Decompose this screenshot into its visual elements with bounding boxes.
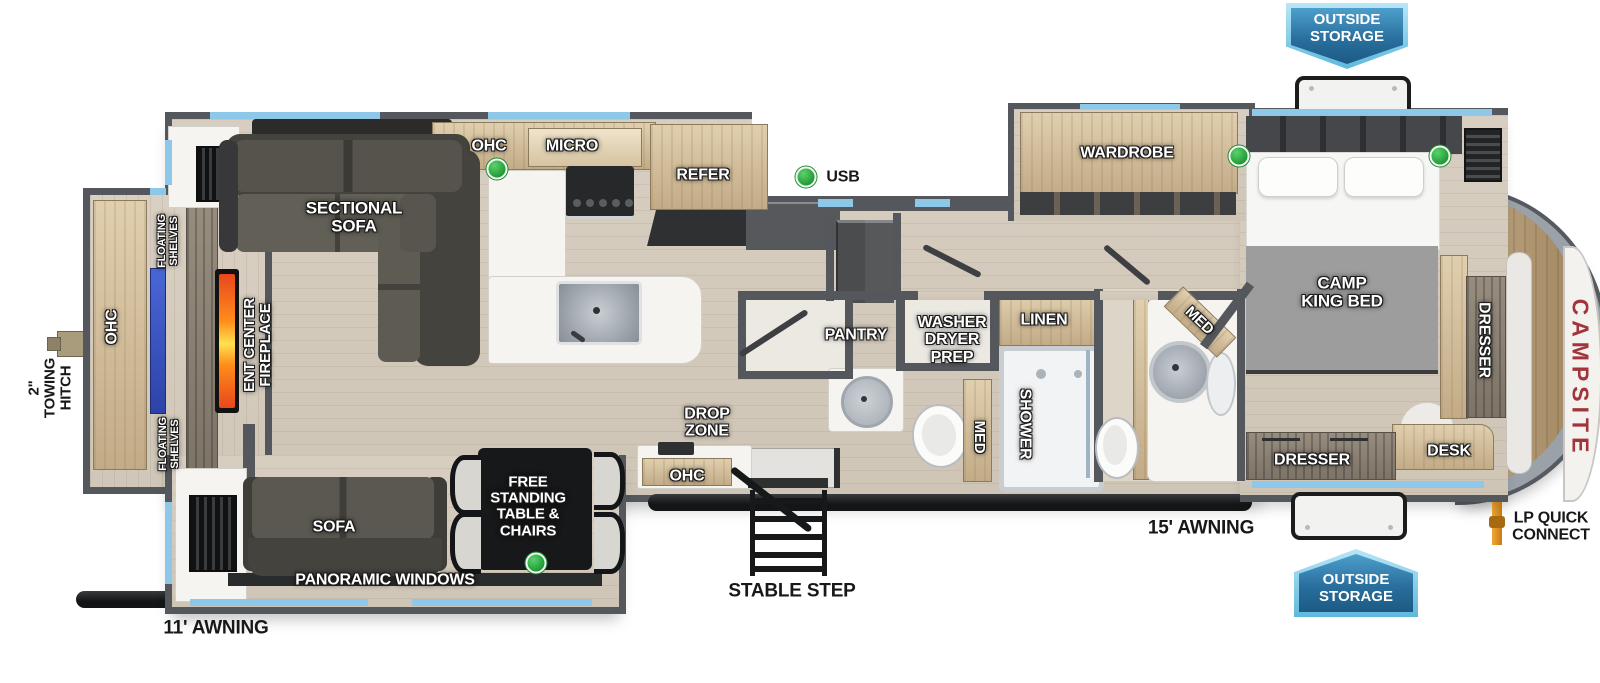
med-bath-label: MED: [971, 421, 987, 454]
panoramic-windows-label: PANORAMIC WINDOWS: [295, 571, 474, 588]
stable-step-label: STABLE STEP: [728, 582, 855, 603]
pantry-label: PANTRY: [825, 326, 888, 343]
dresser-front-label: DRESSER: [1475, 302, 1492, 378]
towing-hitch-label: 2" TOWING HITCH: [27, 358, 76, 418]
indicator-dot-4: [1430, 146, 1451, 167]
ent-center-fireplace-label: ENT CENTER FIREPLACE: [242, 298, 274, 392]
drop-zone-label: DROP ZONE: [684, 406, 729, 441]
desk-label: DESK: [1427, 442, 1471, 459]
micro-label: MICRO: [546, 137, 598, 154]
sectional-sofa-label: SECTIONAL SOFA: [306, 200, 402, 237]
indicator-dot-2: [796, 167, 817, 188]
dresser-bedroom-label: DRESSER: [1274, 451, 1350, 468]
ohc-rear-label: OHC: [103, 310, 120, 345]
refer-label: REFER: [676, 166, 729, 183]
shower-label: SHOWER: [1016, 389, 1033, 460]
free-standing-table-label: FREE STANDING TABLE & CHAIRS: [490, 475, 566, 540]
outside-storage-top-label: OUTSIDE STORAGE: [1306, 12, 1388, 46]
awning-15-label: 15' AWNING: [1148, 519, 1254, 540]
awning-11-label: 11' AWNING: [163, 619, 268, 640]
wardrobe-label: WARDROBE: [1080, 144, 1174, 161]
linen-label: LINEN: [1020, 311, 1067, 328]
indicator-dot-3: [1229, 146, 1250, 167]
ohc-drop-zone-label: OHC: [670, 467, 705, 484]
floating-shelves-top-label: FLOATING SHELVES: [157, 214, 181, 268]
ohc-kitchen-label: OHC: [472, 137, 507, 154]
rv-floorplan-scene: OUTSIDE STORAGE OUTSIDE STORAGE SECTIONA…: [0, 0, 1600, 683]
indicator-dot-1: [487, 159, 508, 180]
sofa-label: SOFA: [313, 518, 356, 535]
outside-storage-bottom-label: OUTSIDE STORAGE: [1315, 572, 1397, 606]
washer-dryer-prep-label: WASHER DRYER PREP: [917, 314, 986, 366]
lp-quick-connect-label: LP QUICK CONNECT: [1512, 510, 1590, 545]
floating-shelves-bottom-label: FLOATING SHELVES: [158, 417, 182, 471]
usb-label: USB: [826, 168, 859, 185]
campsite-brand-label: CAMPSITE: [1568, 299, 1593, 458]
camp-king-bed-label: CAMP KING BED: [1301, 275, 1383, 312]
med-master-label: MED: [1182, 304, 1217, 338]
indicator-dot-5: [526, 553, 547, 574]
